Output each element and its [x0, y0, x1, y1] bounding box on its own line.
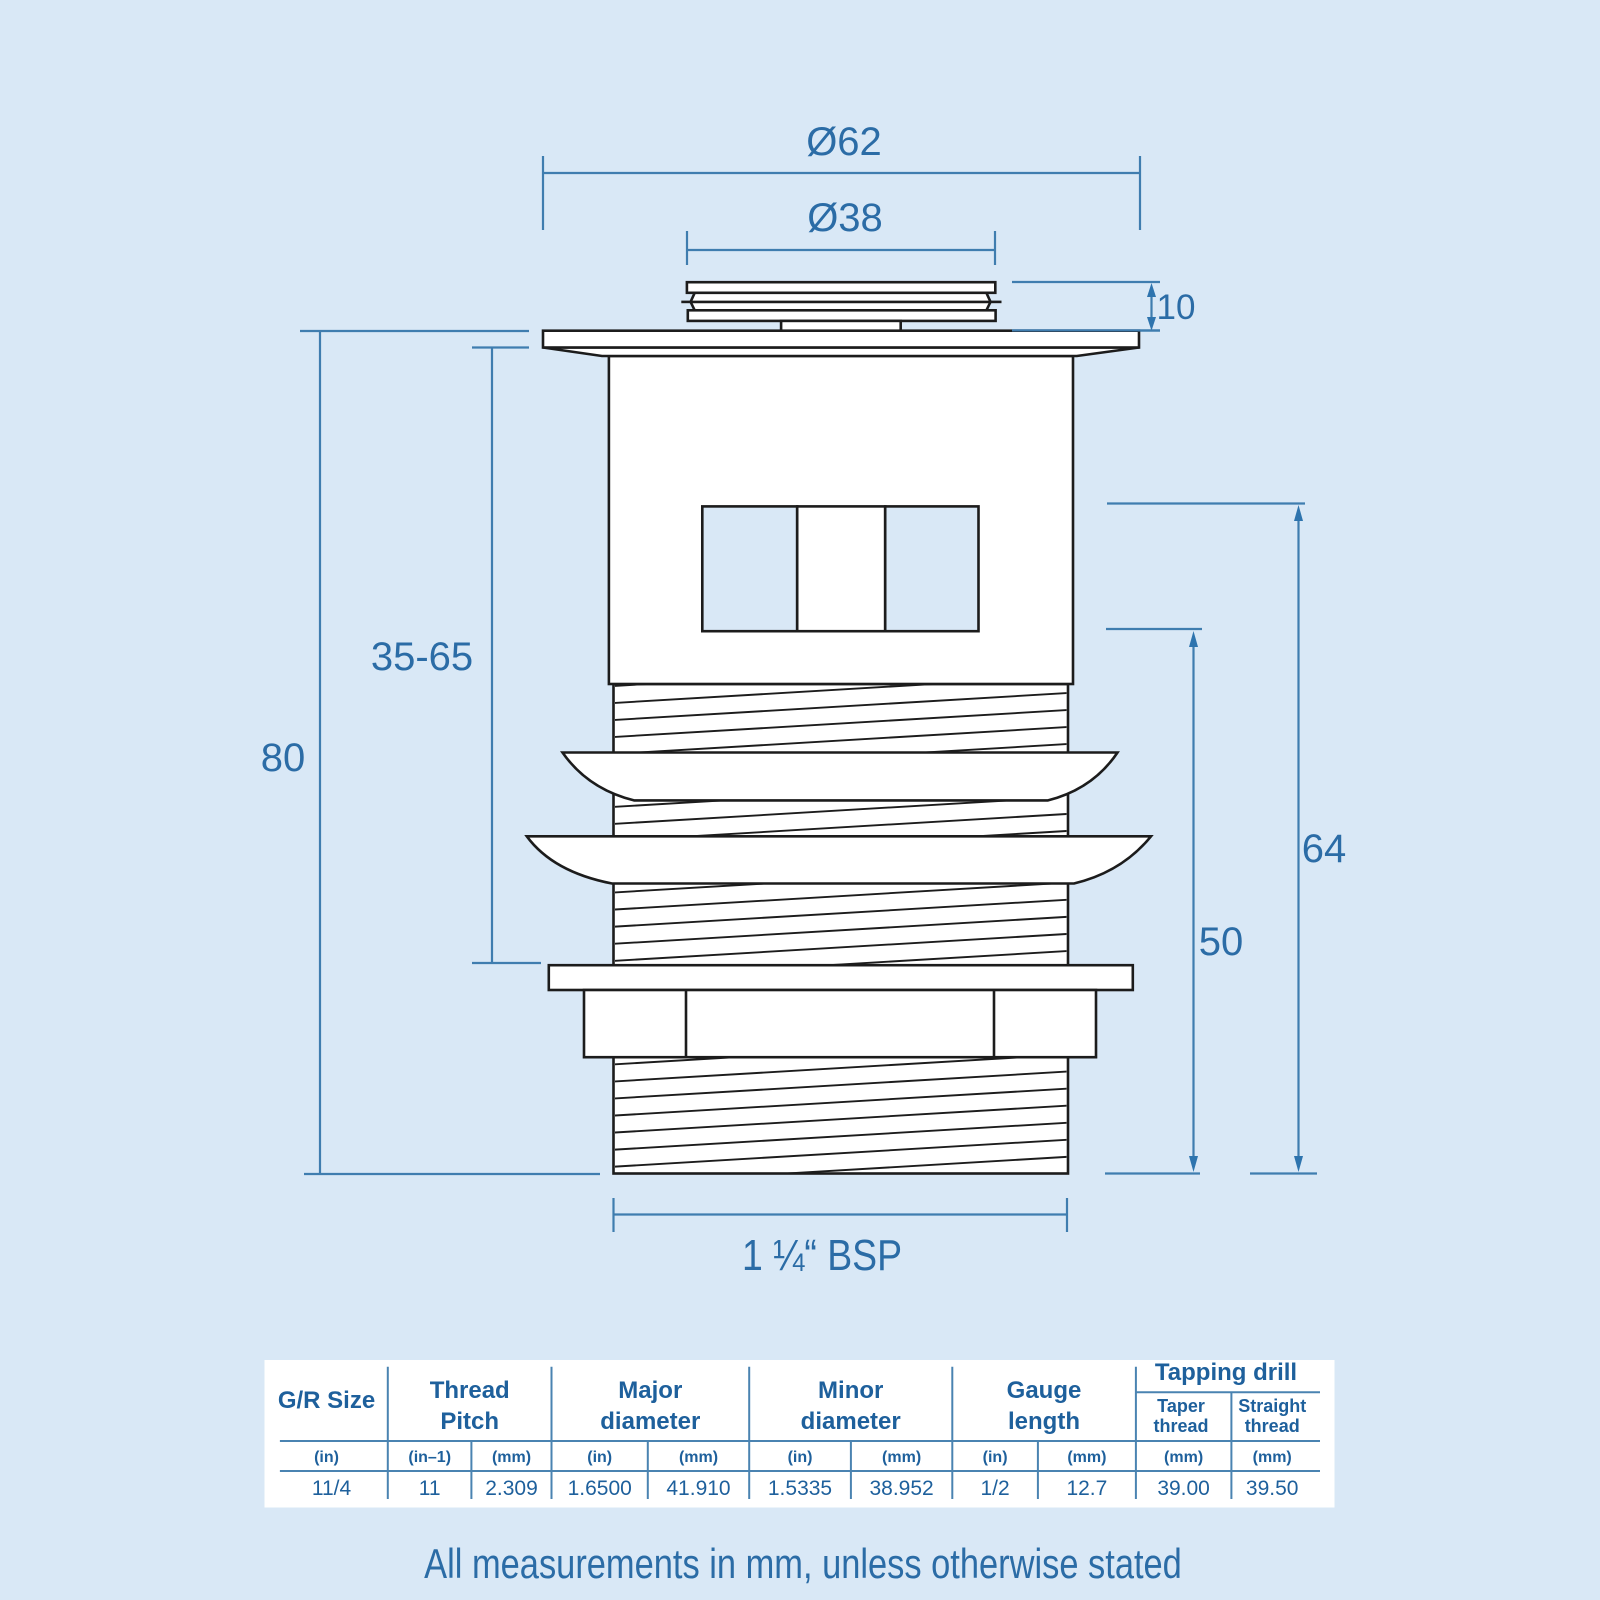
svg-text:(in): (in) [314, 1449, 339, 1466]
svg-text:35-65: 35-65 [371, 635, 473, 679]
svg-text:11/4: 11/4 [312, 1477, 352, 1500]
svg-text:(mm): (mm) [679, 1449, 718, 1466]
svg-text:41.910: 41.910 [666, 1477, 730, 1500]
svg-text:Tapping drill: Tapping drill [1155, 1359, 1297, 1386]
svg-text:39.00: 39.00 [1157, 1477, 1210, 1500]
svg-text:thread: thread [1245, 1416, 1300, 1436]
svg-text:Ø62: Ø62 [806, 120, 882, 164]
svg-text:G/R Size: G/R Size [278, 1387, 375, 1414]
svg-text:50: 50 [1199, 920, 1244, 964]
svg-text:Straight: Straight [1238, 1396, 1306, 1416]
svg-text:All measurements in mm, unless: All measurements in mm, unless otherwise… [424, 1541, 1182, 1588]
svg-text:Pitch: Pitch [440, 1408, 499, 1435]
svg-text:Major: Major [618, 1377, 682, 1404]
svg-text:12.7: 12.7 [1066, 1477, 1107, 1500]
svg-text:Gauge: Gauge [1007, 1377, 1082, 1404]
svg-text:1/2: 1/2 [980, 1477, 1009, 1500]
svg-text:(mm): (mm) [1253, 1449, 1292, 1466]
svg-text:(in–1): (in–1) [408, 1449, 451, 1466]
svg-text:(mm): (mm) [882, 1449, 921, 1466]
svg-text:Ø38: Ø38 [807, 196, 883, 240]
svg-text:11: 11 [419, 1477, 441, 1500]
svg-text:(in): (in) [587, 1449, 612, 1466]
svg-text:38.952: 38.952 [869, 1477, 933, 1500]
svg-text:64: 64 [1302, 827, 1347, 871]
svg-text:(mm): (mm) [492, 1449, 531, 1466]
svg-text:Taper: Taper [1157, 1396, 1205, 1416]
svg-text:(in): (in) [788, 1449, 813, 1466]
svg-text:1 ¼“ BSP: 1 ¼“ BSP [742, 1230, 902, 1280]
svg-text:(mm): (mm) [1164, 1449, 1203, 1466]
svg-text:2.309: 2.309 [485, 1477, 538, 1500]
svg-text:80: 80 [261, 736, 306, 780]
svg-text:10: 10 [1157, 288, 1196, 327]
svg-text:(in): (in) [983, 1449, 1008, 1466]
svg-text:diameter: diameter [801, 1408, 901, 1435]
svg-text:thread: thread [1153, 1416, 1208, 1436]
svg-text:diameter: diameter [600, 1408, 700, 1435]
svg-text:1.6500: 1.6500 [568, 1477, 632, 1500]
svg-text:length: length [1008, 1408, 1080, 1435]
svg-text:Thread: Thread [430, 1377, 510, 1404]
svg-text:1.5335: 1.5335 [768, 1477, 832, 1500]
svg-text:(mm): (mm) [1067, 1449, 1106, 1466]
svg-text:Minor: Minor [818, 1377, 883, 1404]
svg-text:39.50: 39.50 [1246, 1477, 1299, 1500]
